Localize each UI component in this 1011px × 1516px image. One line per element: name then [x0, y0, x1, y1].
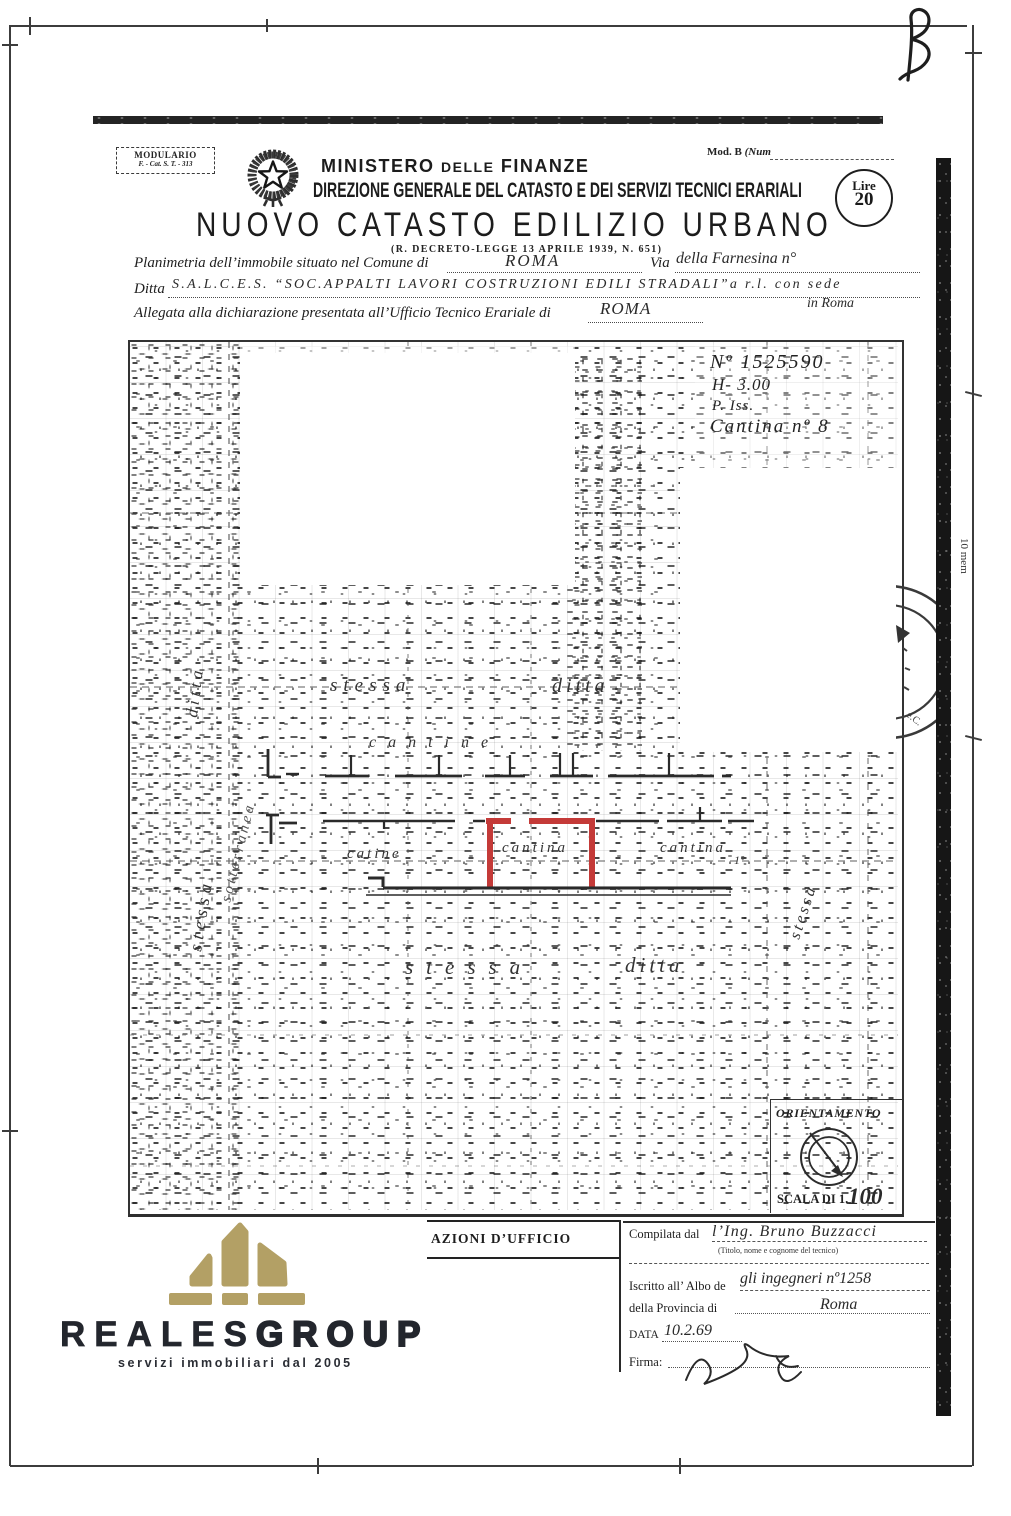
svg-text:Cantina nº 8: Cantina nº 8	[710, 416, 830, 437]
svg-text:catine: catine	[347, 846, 402, 862]
svg-text:cantina: cantina	[502, 840, 568, 856]
svg-text:e.C.: e.C.	[904, 710, 923, 729]
svg-text:1°: 1°	[734, 853, 745, 867]
svg-text:sotterranea: sotterranea	[218, 801, 258, 904]
svg-text:ditta: ditta	[552, 675, 609, 697]
svg-text:stessa: stessa	[185, 877, 216, 952]
svg-text:cantine: cantine	[369, 734, 500, 751]
svg-text:H- 3.00: H- 3.00	[711, 375, 771, 394]
svg-text:ditta: ditta	[182, 665, 207, 718]
svg-text:ditta: ditta	[625, 953, 684, 977]
svg-text:cantina: cantina	[660, 840, 726, 856]
svg-text:stessa: stessa	[405, 955, 533, 979]
svg-text:stessa: stessa	[330, 675, 411, 696]
svg-text:stessa: stessa	[787, 883, 821, 942]
svg-text:Nº 1525590: Nº 1525590	[709, 351, 825, 373]
svg-text:P. Iss.: P. Iss.	[711, 398, 754, 414]
